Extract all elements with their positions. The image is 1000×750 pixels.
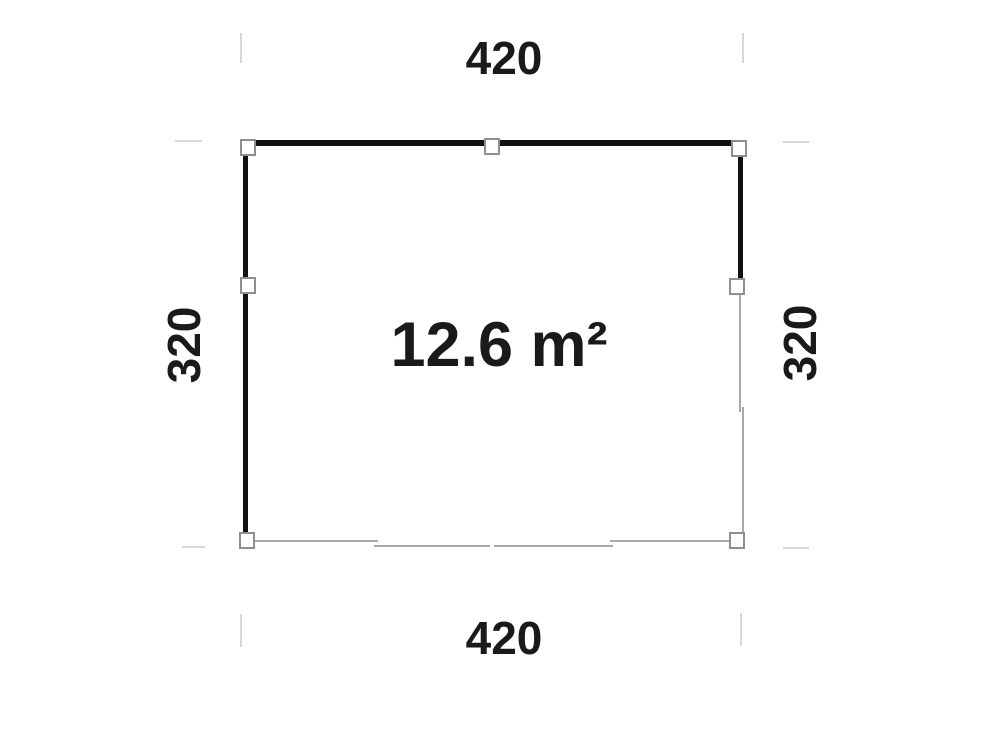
open-edge-bottom-left-segment bbox=[248, 540, 378, 542]
wall-left bbox=[243, 140, 248, 546]
extension-line-top-right bbox=[742, 33, 744, 63]
wall-right-upper bbox=[738, 140, 743, 286]
post-right-middle bbox=[729, 278, 745, 295]
post-top-right bbox=[731, 140, 747, 157]
post-left-middle bbox=[240, 277, 256, 294]
extension-line-left-upper bbox=[175, 140, 202, 142]
post-bottom-right bbox=[729, 532, 745, 549]
extension-line-left-lower bbox=[182, 546, 205, 548]
open-edge-right-lower-segment bbox=[742, 407, 744, 533]
extension-line-bottom-right bbox=[740, 613, 742, 646]
dimension-label-right: 320 bbox=[773, 305, 827, 382]
extension-line-right-lower bbox=[783, 547, 809, 549]
extension-line-top-left bbox=[240, 33, 242, 63]
open-edge-bottom-mid-right-segment bbox=[494, 545, 613, 547]
open-edge-bottom-right-segment bbox=[610, 540, 730, 542]
extension-line-bottom-left bbox=[240, 614, 242, 647]
dimension-label-bottom: 420 bbox=[466, 611, 543, 665]
post-bottom-left bbox=[239, 532, 255, 549]
post-top-left bbox=[240, 139, 256, 156]
dimension-label-left: 320 bbox=[157, 307, 211, 384]
open-edge-bottom-mid-left-segment bbox=[374, 545, 490, 547]
area-label: 12.6 m² bbox=[390, 309, 607, 381]
extension-line-right-upper bbox=[783, 141, 809, 143]
dimension-label-top: 420 bbox=[466, 31, 543, 85]
floor-plan-canvas: 420 420 320 320 12.6 m² bbox=[0, 0, 1000, 750]
open-edge-right-upper-segment bbox=[739, 286, 741, 412]
post-top-center bbox=[484, 138, 500, 155]
